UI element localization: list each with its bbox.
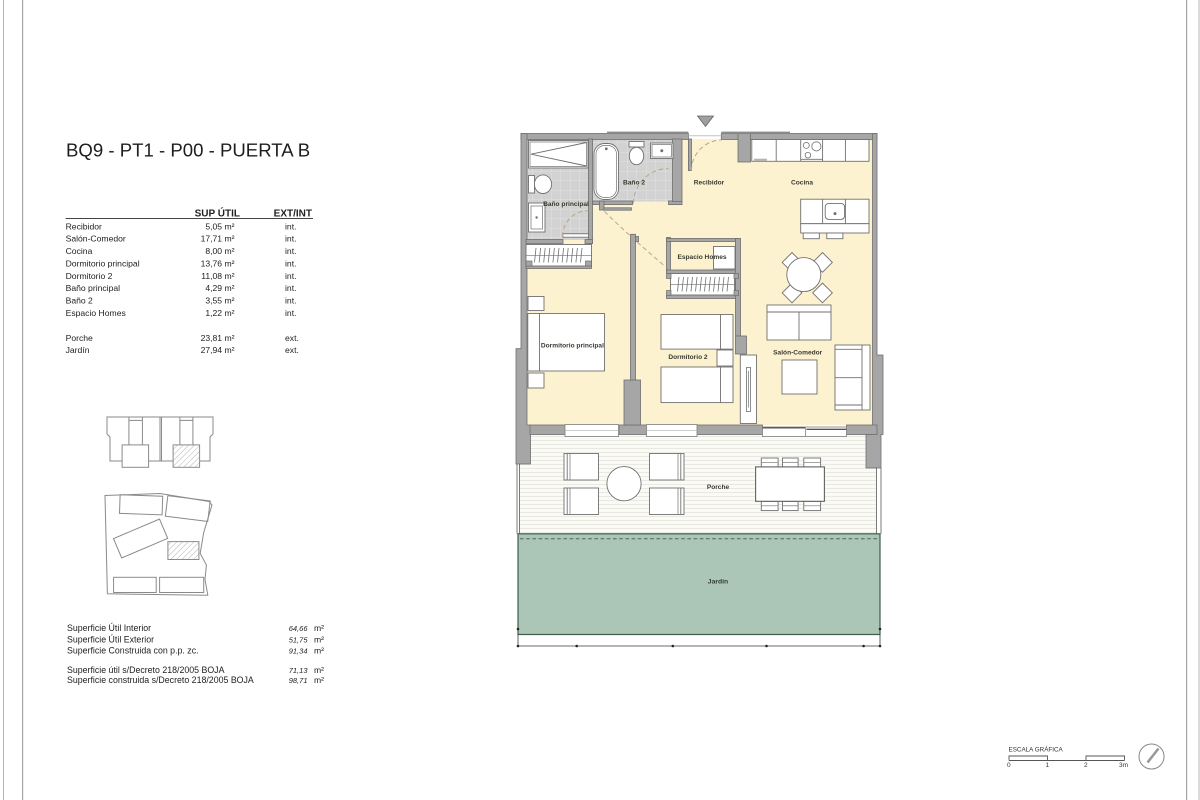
svg-text:13,76 m²: 13,76 m² <box>201 258 235 268</box>
svg-text:int.: int. <box>285 283 296 293</box>
svg-text:SUP ÚTIL: SUP ÚTIL <box>195 206 240 219</box>
svg-text:Salón-Comedor: Salón-Comedor <box>66 234 126 244</box>
svg-text:Dormitorio 2: Dormitorio 2 <box>66 271 113 281</box>
svg-text:Baño principal: Baño principal <box>66 283 121 293</box>
svg-text:int.: int. <box>285 234 296 244</box>
svg-text:23,81 m²: 23,81 m² <box>201 333 235 343</box>
svg-text:Dormitorio 2: Dormitorio 2 <box>668 354 708 361</box>
svg-text:4,29 m²: 4,29 m² <box>205 283 234 293</box>
svg-text:5,05 m²: 5,05 m² <box>205 221 234 231</box>
svg-text:ESCALA GRÁFICA: ESCALA GRÁFICA <box>1009 745 1064 754</box>
svg-text:Baño principal: Baño principal <box>543 201 589 208</box>
svg-text:3m: 3m <box>1119 762 1128 769</box>
svg-text:int.: int. <box>285 246 296 256</box>
svg-text:Superficie Construida con p.p.: Superficie Construida con p.p. zc. <box>67 646 199 656</box>
svg-text:Cocina: Cocina <box>66 246 93 256</box>
svg-text:m²: m² <box>314 675 324 685</box>
svg-text:Superficie Útil Interior: Superficie Útil Interior <box>67 623 151 633</box>
svg-text:1,22 m²: 1,22 m² <box>205 308 234 318</box>
svg-text:Baño 2: Baño 2 <box>623 180 645 187</box>
svg-text:64,66: 64,66 <box>289 624 309 633</box>
svg-text:int.: int. <box>285 258 296 268</box>
svg-text:m²: m² <box>314 646 324 656</box>
svg-text:Jardín: Jardín <box>66 345 90 355</box>
svg-text:Superficie construida s/Decret: Superficie construida s/Decreto 218/2005… <box>67 675 254 685</box>
svg-text:Dormitorio principal: Dormitorio principal <box>66 258 140 268</box>
svg-text:Baño 2: Baño 2 <box>66 296 93 306</box>
svg-text:m²: m² <box>314 665 324 675</box>
svg-text:int.: int. <box>285 308 296 318</box>
svg-text:2: 2 <box>1084 762 1088 769</box>
svg-text:11,08 m²: 11,08 m² <box>201 271 234 281</box>
svg-text:int.: int. <box>285 221 296 231</box>
svg-text:51,75: 51,75 <box>289 636 309 645</box>
svg-text:Espacio Homes: Espacio Homes <box>677 254 726 261</box>
svg-text:int.: int. <box>285 271 296 281</box>
svg-text:0: 0 <box>1007 762 1011 769</box>
svg-text:3,55 m²: 3,55 m² <box>205 296 234 306</box>
svg-text:Superficie útil s/Decreto 218/: Superficie útil s/Decreto 218/2005 BOJA <box>67 665 225 675</box>
svg-text:m²: m² <box>314 623 324 633</box>
svg-text:ext.: ext. <box>285 333 299 343</box>
svg-text:Espacio Homes: Espacio Homes <box>66 308 126 318</box>
svg-text:Jardín: Jardín <box>708 579 728 586</box>
svg-text:17,71 m²: 17,71 m² <box>201 234 235 244</box>
svg-text:91,34: 91,34 <box>289 647 308 656</box>
svg-text:71,13: 71,13 <box>289 666 309 675</box>
svg-text:8,00 m²: 8,00 m² <box>205 246 234 256</box>
svg-text:Dormitorio principal: Dormitorio principal <box>541 342 604 349</box>
svg-text:ext.: ext. <box>285 345 299 355</box>
svg-text:27,94 m²: 27,94 m² <box>201 345 235 355</box>
svg-text:98,71: 98,71 <box>289 676 308 685</box>
svg-text:Cocina: Cocina <box>791 180 813 187</box>
svg-text:Salón-Comedor: Salón-Comedor <box>773 350 823 357</box>
svg-text:BQ9 - PT1 - P00 - PUERTA B: BQ9 - PT1 - P00 - PUERTA B <box>66 140 310 161</box>
svg-text:1: 1 <box>1046 762 1050 769</box>
svg-text:Recibidor: Recibidor <box>66 221 102 231</box>
svg-text:Porche: Porche <box>66 333 93 343</box>
svg-text:Recibidor: Recibidor <box>694 180 725 187</box>
svg-text:EXT/INT: EXT/INT <box>274 208 312 219</box>
svg-text:m²: m² <box>314 635 324 645</box>
svg-text:Superficie Útil Exterior: Superficie Útil Exterior <box>67 635 154 645</box>
svg-text:Porche: Porche <box>707 484 730 491</box>
svg-text:int.: int. <box>285 296 296 306</box>
